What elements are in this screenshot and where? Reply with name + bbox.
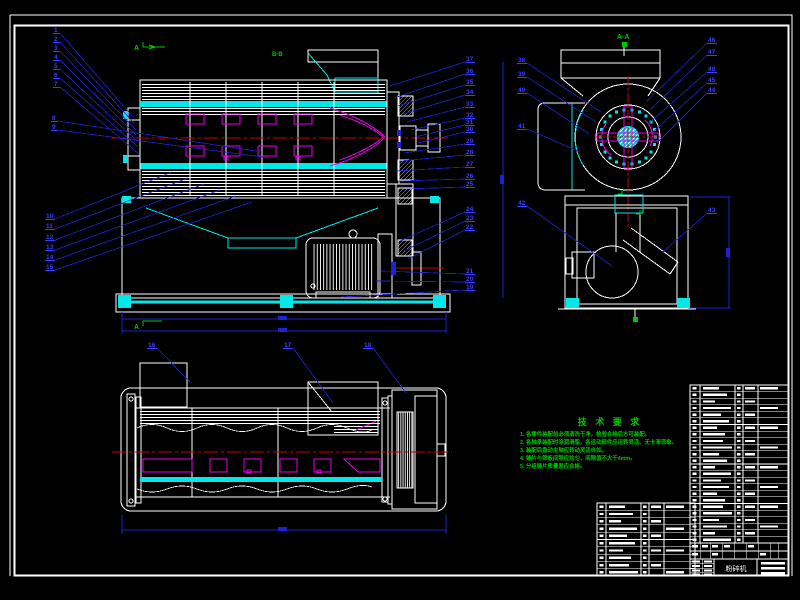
cell-text-blob xyxy=(745,519,755,521)
cell-text-blob xyxy=(737,413,741,415)
callout-label-17: 17 xyxy=(284,342,292,349)
support-column xyxy=(396,184,413,256)
cell-text-blob xyxy=(737,440,741,442)
cell-text-blob xyxy=(693,440,697,442)
cell-text-blob xyxy=(703,532,715,534)
cell-text-blob xyxy=(703,466,715,468)
cell-text-blob xyxy=(704,565,712,567)
callout-leader-43 xyxy=(663,213,707,252)
cell-text-blob xyxy=(609,542,635,544)
cell-text-blob xyxy=(703,387,719,389)
cell-text-blob xyxy=(737,525,741,527)
hopper-mouth xyxy=(308,50,378,62)
cell-text-blob xyxy=(745,387,755,389)
parts-list-table-right xyxy=(690,385,789,543)
cell-text-blob xyxy=(703,427,717,429)
callout-leader-46 xyxy=(647,43,707,101)
cell-text-blob xyxy=(693,427,697,429)
cell-text-blob xyxy=(737,512,741,514)
cell-text-blob xyxy=(760,506,778,508)
callout-label-23: 23 xyxy=(466,215,474,222)
callout-leader-32 xyxy=(411,118,465,130)
hammer-tip xyxy=(638,161,641,164)
cell-text-blob xyxy=(745,532,755,534)
hammer-tip xyxy=(645,115,648,118)
cell-text-blob xyxy=(737,532,741,534)
cell-text-blob xyxy=(760,525,778,527)
callout-label-36: 36 xyxy=(466,68,474,75)
hammer-tip xyxy=(650,150,653,153)
callout-label-43: 43 xyxy=(708,207,716,214)
callout-label-48: 48 xyxy=(708,66,716,73)
cell-text-blob xyxy=(600,535,604,537)
cell-text-blob xyxy=(745,440,755,442)
cell-text-blob xyxy=(703,492,717,494)
cell-text-blob xyxy=(643,527,647,529)
cell-text-blob xyxy=(760,486,778,488)
cell-text-blob xyxy=(693,446,697,448)
callout-label-11: 11 xyxy=(46,223,53,230)
top-view-dimension xyxy=(122,515,446,534)
callout-label-6: 6 xyxy=(54,72,58,79)
cell-text-blob xyxy=(600,564,604,566)
cell-text-blob xyxy=(693,492,697,494)
cell-text-blob xyxy=(748,545,754,547)
cell-text-blob xyxy=(737,407,741,409)
cell-text-blob xyxy=(745,427,755,429)
hammer-tip xyxy=(608,115,611,118)
hammer-tip xyxy=(615,110,618,113)
callout-label-27: 27 xyxy=(466,161,474,168)
section-label-aa: A-A xyxy=(617,34,629,41)
cell-text-blob xyxy=(643,557,647,559)
hopper-top xyxy=(140,363,187,407)
end-base xyxy=(558,195,696,309)
screen-band-top xyxy=(140,101,387,107)
cell-text-blob xyxy=(693,473,697,475)
cell-text-blob xyxy=(693,394,697,396)
tech-requirement-line-3: 3. 装配后盘动主轴应转动灵活自如。 xyxy=(520,446,607,454)
callout-label-28: 28 xyxy=(466,149,474,156)
callout-label-16: 16 xyxy=(148,342,156,349)
callout-label-20: 20 xyxy=(466,276,474,283)
callout-label-35: 35 xyxy=(466,79,474,86)
cell-text-blob xyxy=(692,561,700,563)
callout-label-24: 24 xyxy=(466,206,474,213)
cell-text-blob xyxy=(600,505,604,507)
tech-requirements: 技 术 要 求 1. 各零件装配前必须清洗干净，检验合格后方可装配。2. 各轴承… xyxy=(520,416,677,470)
parts-list-table-left xyxy=(597,503,695,576)
cell-text-blob xyxy=(651,520,661,522)
cell-text-blob xyxy=(609,549,623,551)
cell-text-blob xyxy=(745,466,755,468)
cell-text-blob xyxy=(693,460,697,462)
cell-text-blob xyxy=(702,545,708,547)
cell-text-blob xyxy=(760,427,778,429)
cell-text-blob xyxy=(600,513,604,515)
callout-label-32: 32 xyxy=(466,112,474,119)
cell-text-blob xyxy=(692,570,700,572)
callout-label-45: 45 xyxy=(708,77,716,84)
callout-leader-36 xyxy=(394,74,465,98)
feed-cone xyxy=(330,108,385,166)
cell-text-blob xyxy=(737,460,741,462)
cell-text-blob xyxy=(704,574,712,576)
org-text-blob xyxy=(761,567,785,569)
org-text-blob xyxy=(761,572,785,574)
cad-drawing-canvas: A-A xyxy=(0,0,800,600)
hammer-tip xyxy=(615,161,618,164)
callout-label-15: 15 xyxy=(46,264,54,271)
callout-label-46: 46 xyxy=(708,37,716,44)
callout-leader-4 xyxy=(60,60,136,135)
cell-text-blob xyxy=(703,400,715,402)
cell-text-blob xyxy=(737,420,741,422)
hammer-tip xyxy=(603,121,606,124)
cell-text-blob xyxy=(693,479,697,481)
callout-leader-37 xyxy=(390,62,465,86)
tech-requirement-line-1: 1. 各零件装配前必须清洗干净，检验合格后方可装配。 xyxy=(520,430,650,438)
drawing-title: 粉碎机 xyxy=(726,564,747,573)
cell-text-blob xyxy=(703,512,732,514)
cell-text-blob xyxy=(692,553,698,555)
cell-text-blob xyxy=(693,420,697,422)
cell-text-blob xyxy=(760,387,778,389)
cell-text-blob xyxy=(692,565,700,567)
cell-text-blob xyxy=(703,473,731,475)
cell-text-blob xyxy=(737,492,741,494)
tech-requirements-title: 技 术 要 求 xyxy=(578,416,643,427)
cell-text-blob xyxy=(745,506,755,508)
callout-leader-38 xyxy=(527,63,601,112)
cell-text-blob xyxy=(609,527,637,529)
cell-text-blob xyxy=(703,413,721,415)
callout-leader-12 xyxy=(55,184,204,240)
cell-text-blob xyxy=(737,427,741,429)
callout-label-19: 19 xyxy=(466,284,474,291)
callout-label-1: 1 xyxy=(54,27,58,34)
section-label-a-top: A xyxy=(134,45,139,52)
cell-text-blob xyxy=(643,535,647,537)
cell-text-blob xyxy=(737,453,741,455)
cell-text-blob xyxy=(703,420,729,422)
cell-text-blob xyxy=(693,407,697,409)
end-grill xyxy=(392,390,445,509)
discharge-funnel xyxy=(146,208,378,248)
cell-text-blob xyxy=(745,453,755,455)
cell-text-blob xyxy=(737,446,741,448)
callout-label-12: 12 xyxy=(46,234,54,241)
callout-leader-17 xyxy=(293,348,333,403)
callout-label-7: 7 xyxy=(54,81,58,88)
callout-leader-3 xyxy=(60,51,135,129)
callout-label-33: 33 xyxy=(466,101,474,108)
callout-leader-30 xyxy=(418,132,465,143)
cell-text-blob xyxy=(704,561,712,563)
cell-text-blob xyxy=(737,486,741,488)
cell-text-blob xyxy=(693,499,697,501)
cell-text-blob xyxy=(703,499,725,501)
cell-text-blob xyxy=(666,549,684,551)
section-label-bb: B-B xyxy=(272,52,283,58)
callout-label-31: 31 xyxy=(466,119,474,126)
cell-text-blob xyxy=(609,571,638,573)
callout-leader-9 xyxy=(58,130,270,158)
title-block: 粉碎机 xyxy=(690,543,789,576)
tech-requirement-line-5: 5. 分组锤片质量差应合格。 xyxy=(520,462,585,470)
cell-text-blob xyxy=(693,433,697,435)
base-rail xyxy=(116,294,450,312)
callout-label-25: 25 xyxy=(466,181,474,188)
cell-text-blob xyxy=(703,539,731,541)
hammer-tip xyxy=(645,156,648,159)
cell-text-blob xyxy=(703,433,725,435)
cell-text-blob xyxy=(643,564,647,566)
callout-label-47: 47 xyxy=(708,49,716,56)
callout-label-14: 14 xyxy=(46,254,54,261)
cell-text-blob xyxy=(666,527,684,529)
callout-label-22: 22 xyxy=(466,224,474,231)
cell-text-blob xyxy=(693,413,697,415)
callout-leader-48 xyxy=(649,72,707,123)
cell-text-blob xyxy=(703,394,727,396)
cell-text-blob xyxy=(609,535,627,537)
callout-label-9: 9 xyxy=(52,124,56,131)
hammer-row-top-view xyxy=(143,459,380,473)
callout-leader-5 xyxy=(60,69,137,141)
cell-text-blob xyxy=(609,513,633,515)
cell-text-blob xyxy=(737,394,741,396)
cell-text-blob xyxy=(737,506,741,508)
cell-text-blob xyxy=(600,527,604,529)
cell-text-blob xyxy=(737,473,741,475)
cell-text-blob xyxy=(737,519,741,521)
cell-text-blob xyxy=(703,460,727,462)
callout-label-13: 13 xyxy=(46,244,54,251)
callout-label-21: 21 xyxy=(466,268,474,275)
callout-leader-1 xyxy=(60,33,133,117)
callout-label-2: 2 xyxy=(54,36,58,43)
cell-text-blob xyxy=(745,413,755,415)
cell-text-blob xyxy=(737,400,741,402)
cell-text-blob xyxy=(693,486,697,488)
cell-text-blob xyxy=(693,387,697,389)
cell-text-blob xyxy=(643,571,647,573)
cell-text-blob xyxy=(692,574,700,576)
callout-label-42: 42 xyxy=(518,200,526,207)
callout-label-10: 10 xyxy=(46,213,54,220)
cell-text-blob xyxy=(609,505,625,507)
callout-label-39: 39 xyxy=(518,71,526,78)
top-view xyxy=(112,363,452,534)
cell-text-blob xyxy=(712,545,718,547)
cell-text-blob xyxy=(760,446,778,448)
callout-leader-13 xyxy=(55,190,220,250)
cell-text-blob xyxy=(712,553,718,555)
cell-text-blob xyxy=(703,506,723,508)
cell-text-blob xyxy=(600,571,604,573)
cell-text-blob xyxy=(760,407,778,409)
cell-text-blob xyxy=(651,505,661,507)
callout-label-4: 4 xyxy=(54,54,58,61)
hammer-tip xyxy=(653,143,656,146)
cell-text-blob xyxy=(703,525,727,527)
callout-label-8: 8 xyxy=(52,115,56,122)
cell-text-blob xyxy=(643,505,647,507)
cell-text-blob xyxy=(666,505,684,507)
cell-text-blob xyxy=(609,520,621,522)
cell-text-blob xyxy=(703,519,719,521)
cell-text-blob xyxy=(609,564,629,566)
callout-leader-28 xyxy=(400,155,465,161)
section-label-a-bottom: A xyxy=(134,324,139,331)
screen-band-top-view xyxy=(140,477,382,482)
cell-text-blob xyxy=(609,557,631,559)
cell-text-blob xyxy=(643,520,647,522)
cell-text-blob xyxy=(704,570,712,572)
callout-label-3: 3 xyxy=(54,45,58,52)
org-text-blob xyxy=(761,562,785,564)
callout-label-29: 29 xyxy=(466,138,474,145)
cell-text-blob xyxy=(643,513,647,515)
callout-label-44: 44 xyxy=(708,87,716,94)
cell-text-blob xyxy=(724,545,730,547)
cell-text-blob xyxy=(703,440,723,442)
cell-text-blob xyxy=(703,479,721,481)
cell-text-blob xyxy=(745,400,755,402)
callout-leader-40 xyxy=(527,93,589,134)
cell-text-blob xyxy=(651,564,661,566)
callout-leader-42 xyxy=(527,206,612,266)
callout-label-30: 30 xyxy=(466,126,474,133)
cell-text-blob xyxy=(703,486,729,488)
cell-text-blob xyxy=(600,542,604,544)
motor xyxy=(306,230,444,298)
callout-leader-20 xyxy=(376,281,465,282)
callout-label-40: 40 xyxy=(518,87,526,94)
cell-text-blob xyxy=(737,539,741,541)
hammer-tip xyxy=(608,156,611,159)
callout-leader-16 xyxy=(157,348,190,382)
cell-text-blob xyxy=(600,549,604,551)
callout-leader-8 xyxy=(58,121,262,152)
callout-label-37: 37 xyxy=(466,56,474,63)
cell-text-blob xyxy=(693,453,697,455)
cell-text-blob xyxy=(737,433,741,435)
callout-label-34: 34 xyxy=(466,89,474,96)
cell-text-blob xyxy=(737,499,741,501)
tech-requirement-line-2: 2. 各轴承装配时涂润滑脂，各运动部件应运转灵活、无卡滞现象。 xyxy=(520,438,677,446)
cell-text-blob xyxy=(666,571,684,573)
cell-text-blob xyxy=(600,520,604,522)
cell-text-blob xyxy=(693,400,697,402)
hammer-tip xyxy=(638,110,641,113)
cell-text-blob xyxy=(745,492,755,494)
callout-label-26: 26 xyxy=(466,173,474,180)
cad-drawing-page: { "drawing": { "type": "engineering-asse… xyxy=(0,0,800,600)
callout-leader-44 xyxy=(657,93,707,143)
cell-text-blob xyxy=(651,535,661,537)
end-view: A-A xyxy=(538,34,731,322)
cell-text-blob xyxy=(737,479,741,481)
cell-text-blob xyxy=(703,446,732,448)
hammer-row xyxy=(186,114,312,160)
cell-text-blob xyxy=(760,466,778,468)
cell-text-blob xyxy=(600,557,604,559)
callout-label-5: 5 xyxy=(54,63,58,70)
cell-text-blob xyxy=(760,553,766,555)
screen-band-bottom xyxy=(140,163,387,169)
cell-text-blob xyxy=(651,549,661,551)
callout-label-38: 38 xyxy=(518,57,526,64)
cell-text-blob xyxy=(643,542,647,544)
cell-text-blob xyxy=(692,545,698,547)
cell-text-blob xyxy=(737,466,741,468)
cell-text-blob xyxy=(737,387,741,389)
callout-label-18: 18 xyxy=(364,342,372,349)
cell-text-blob xyxy=(703,407,731,409)
cell-text-blob xyxy=(703,453,719,455)
cell-text-blob xyxy=(745,479,755,481)
cell-text-blob xyxy=(643,549,647,551)
callout-label-41: 41 xyxy=(518,123,526,130)
cell-text-blob xyxy=(693,466,697,468)
break-line-bottom xyxy=(137,485,372,492)
tech-requirement-line-4: 4. 锤片与筛板间隙应均匀，间隙值不大于4mm。 xyxy=(520,454,636,462)
